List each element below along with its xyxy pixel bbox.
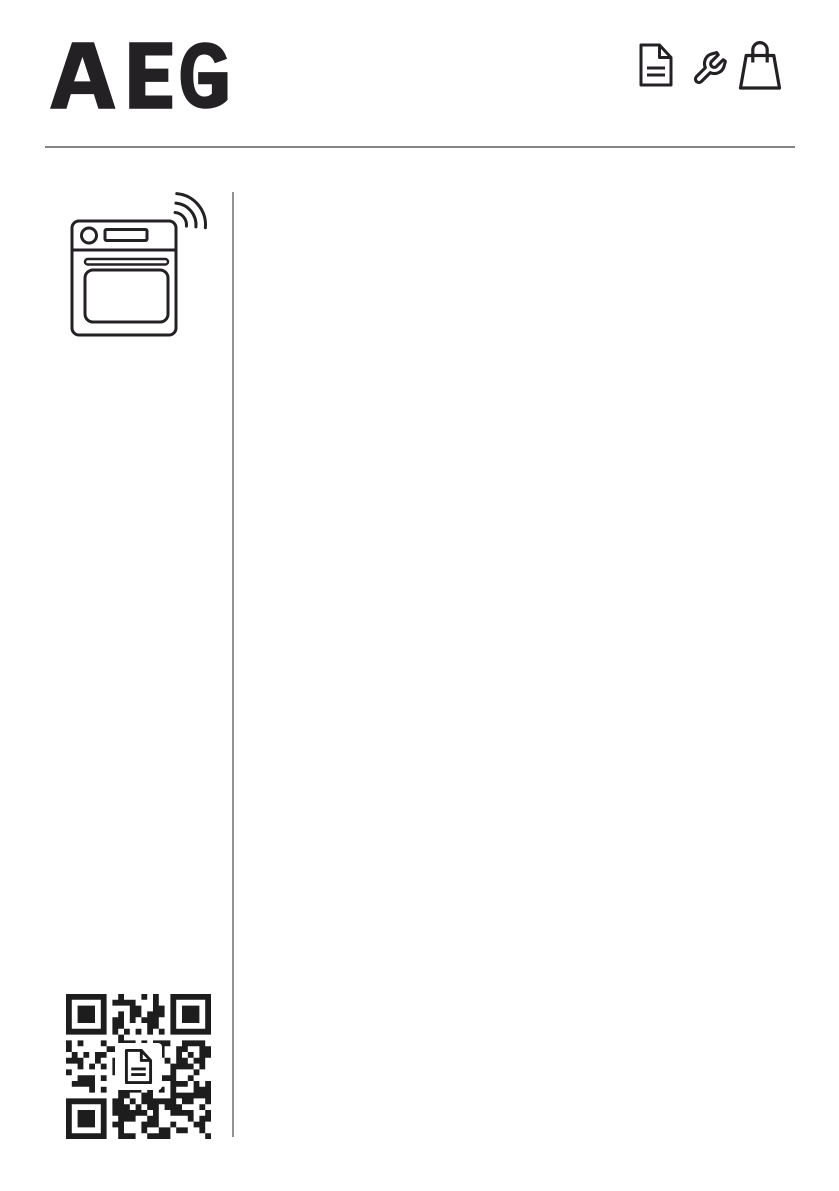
oven-wifi-icon	[70, 189, 210, 339]
wifi-signal-icon	[174, 194, 208, 228]
qr-code	[66, 994, 211, 1139]
document-icon	[124, 1048, 153, 1085]
qr-center-plate	[115, 1043, 162, 1090]
aeg-logo: AEG	[50, 42, 228, 109]
oven-door-window	[85, 270, 168, 322]
wrench-icon	[687, 42, 735, 90]
document-icon	[638, 43, 674, 87]
bag-handle	[753, 43, 767, 63]
oven-knob	[82, 228, 97, 243]
bag-body	[741, 56, 780, 89]
logo-letter-a	[50, 42, 116, 109]
shopping-bag-icon	[736, 39, 784, 91]
header-divider	[45, 146, 795, 148]
wrench-outline	[689, 50, 728, 89]
logo-letter-g	[181, 42, 228, 109]
logo-letter-e	[129, 42, 172, 109]
oven-handle	[85, 259, 168, 265]
document-outline	[641, 45, 671, 85]
column-divider	[232, 192, 234, 1137]
manual-cover-page: AEG	[0, 0, 839, 1191]
oven-display	[105, 230, 147, 241]
document-text-lines	[647, 68, 665, 75]
